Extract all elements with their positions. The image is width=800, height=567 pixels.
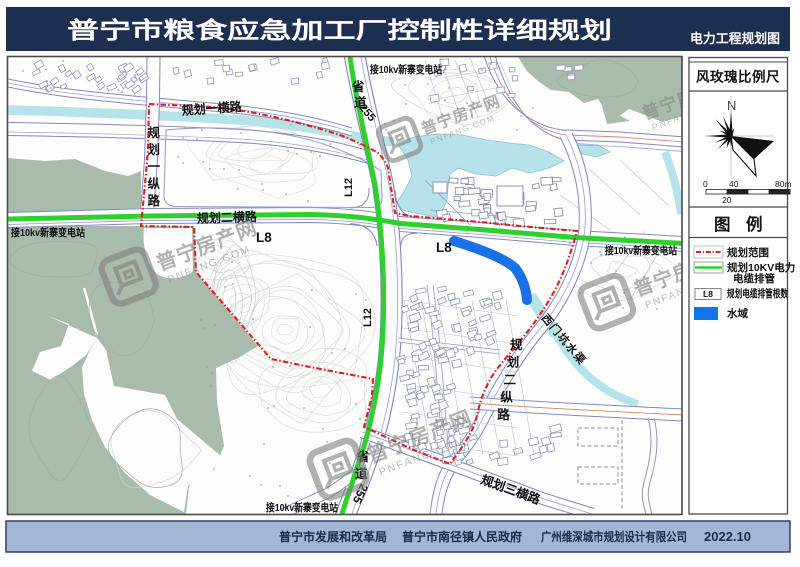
svg-text:接10kv新寨变电站: 接10kv新寨变电站 — [266, 501, 338, 514]
svg-text:普宁市发展和改革局: 普宁市发展和改革局 — [279, 529, 387, 544]
svg-text:2022.10: 2022.10 — [704, 529, 751, 544]
svg-text:L8: L8 — [703, 289, 713, 299]
svg-text:接10kv新寨变电站: 接10kv新寨变电站 — [605, 244, 677, 257]
svg-text:80m: 80m — [775, 179, 792, 189]
svg-text:电力工程规划图: 电力工程规划图 — [690, 31, 780, 46]
svg-text:L12: L12 — [343, 178, 355, 197]
svg-text:规划范围: 规划范围 — [727, 246, 769, 259]
svg-text:一: 一 — [148, 160, 161, 174]
svg-text:规: 规 — [148, 125, 161, 140]
svg-text:路: 路 — [497, 407, 510, 422]
svg-text:路: 路 — [148, 193, 161, 208]
svg-text:水域: 水域 — [726, 307, 748, 320]
svg-text:规划电缆排管根数: 规划电缆排管根数 — [727, 287, 788, 300]
svg-text:L8: L8 — [436, 240, 452, 255]
svg-text:划: 划 — [507, 355, 520, 370]
svg-text:省: 省 — [351, 79, 365, 94]
svg-text:普宁市南径镇人民政府: 普宁市南径镇人民政府 — [402, 529, 522, 544]
svg-text:40: 40 — [729, 179, 739, 189]
svg-text:图例: 图例 — [714, 214, 778, 234]
svg-text:二: 二 — [504, 373, 517, 387]
svg-text:纵: 纵 — [148, 176, 161, 191]
svg-text:0: 0 — [703, 179, 708, 189]
svg-text:风玫瑰比例尺: 风玫瑰比例尺 — [696, 69, 780, 85]
svg-text:20: 20 — [722, 195, 732, 205]
svg-text:L12: L12 — [362, 308, 374, 327]
svg-text:接10kv新寨变电站: 接10kv新寨变电站 — [11, 226, 85, 239]
svg-text:电缆排管: 电缆排管 — [733, 272, 775, 285]
svg-text:划: 划 — [148, 142, 161, 157]
svg-text:普宁市粮食应急加工厂控制性详细规划: 普宁市粮食应急加工厂控制性详细规划 — [67, 17, 612, 43]
svg-text:N: N — [727, 98, 736, 113]
svg-text:广州维深城市规划设计有限公司: 广州维深城市规划设计有限公司 — [541, 529, 687, 544]
svg-text:接10kv新寨变电站: 接10kv新寨变电站 — [370, 63, 442, 76]
svg-text:纵: 纵 — [500, 390, 513, 405]
svg-text:规: 规 — [510, 337, 523, 352]
